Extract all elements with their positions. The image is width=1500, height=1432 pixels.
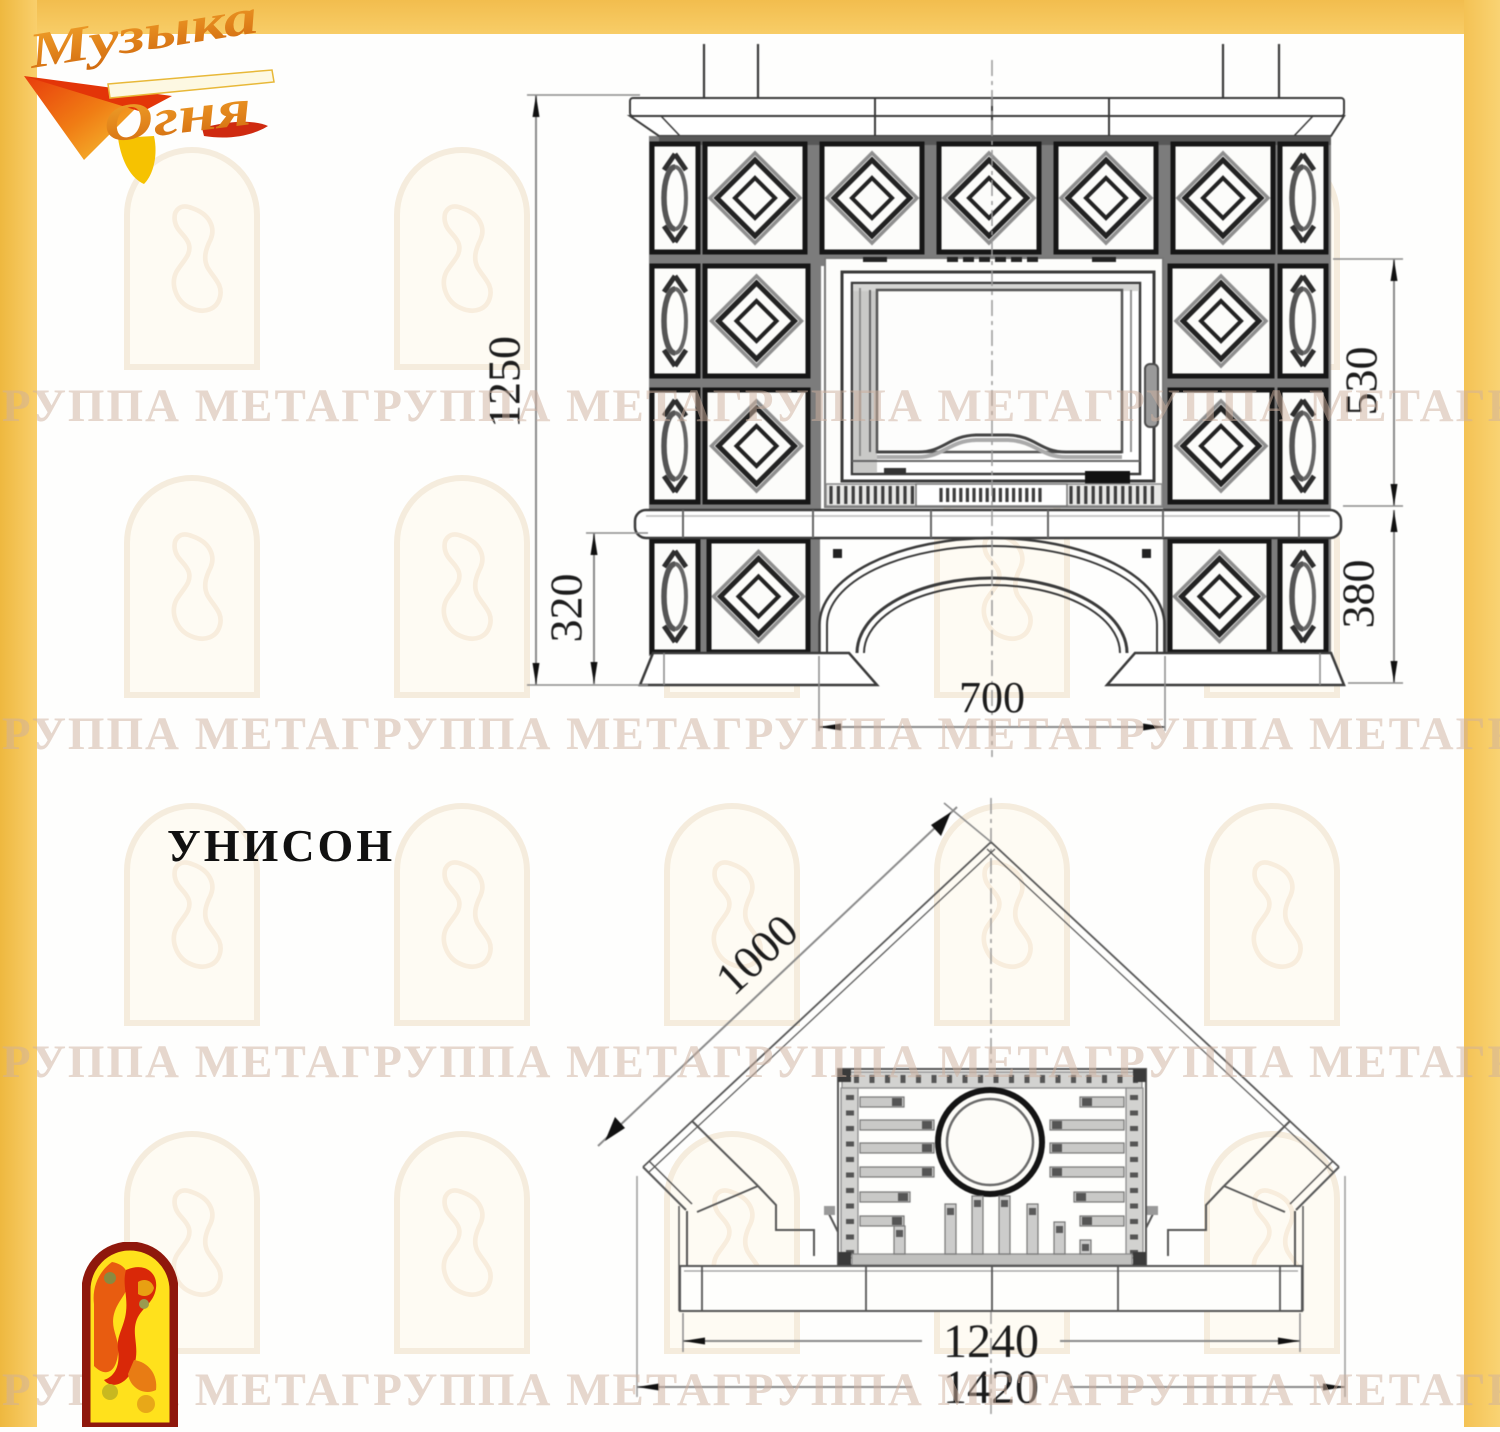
svg-text:1000: 1000: [706, 904, 808, 1004]
